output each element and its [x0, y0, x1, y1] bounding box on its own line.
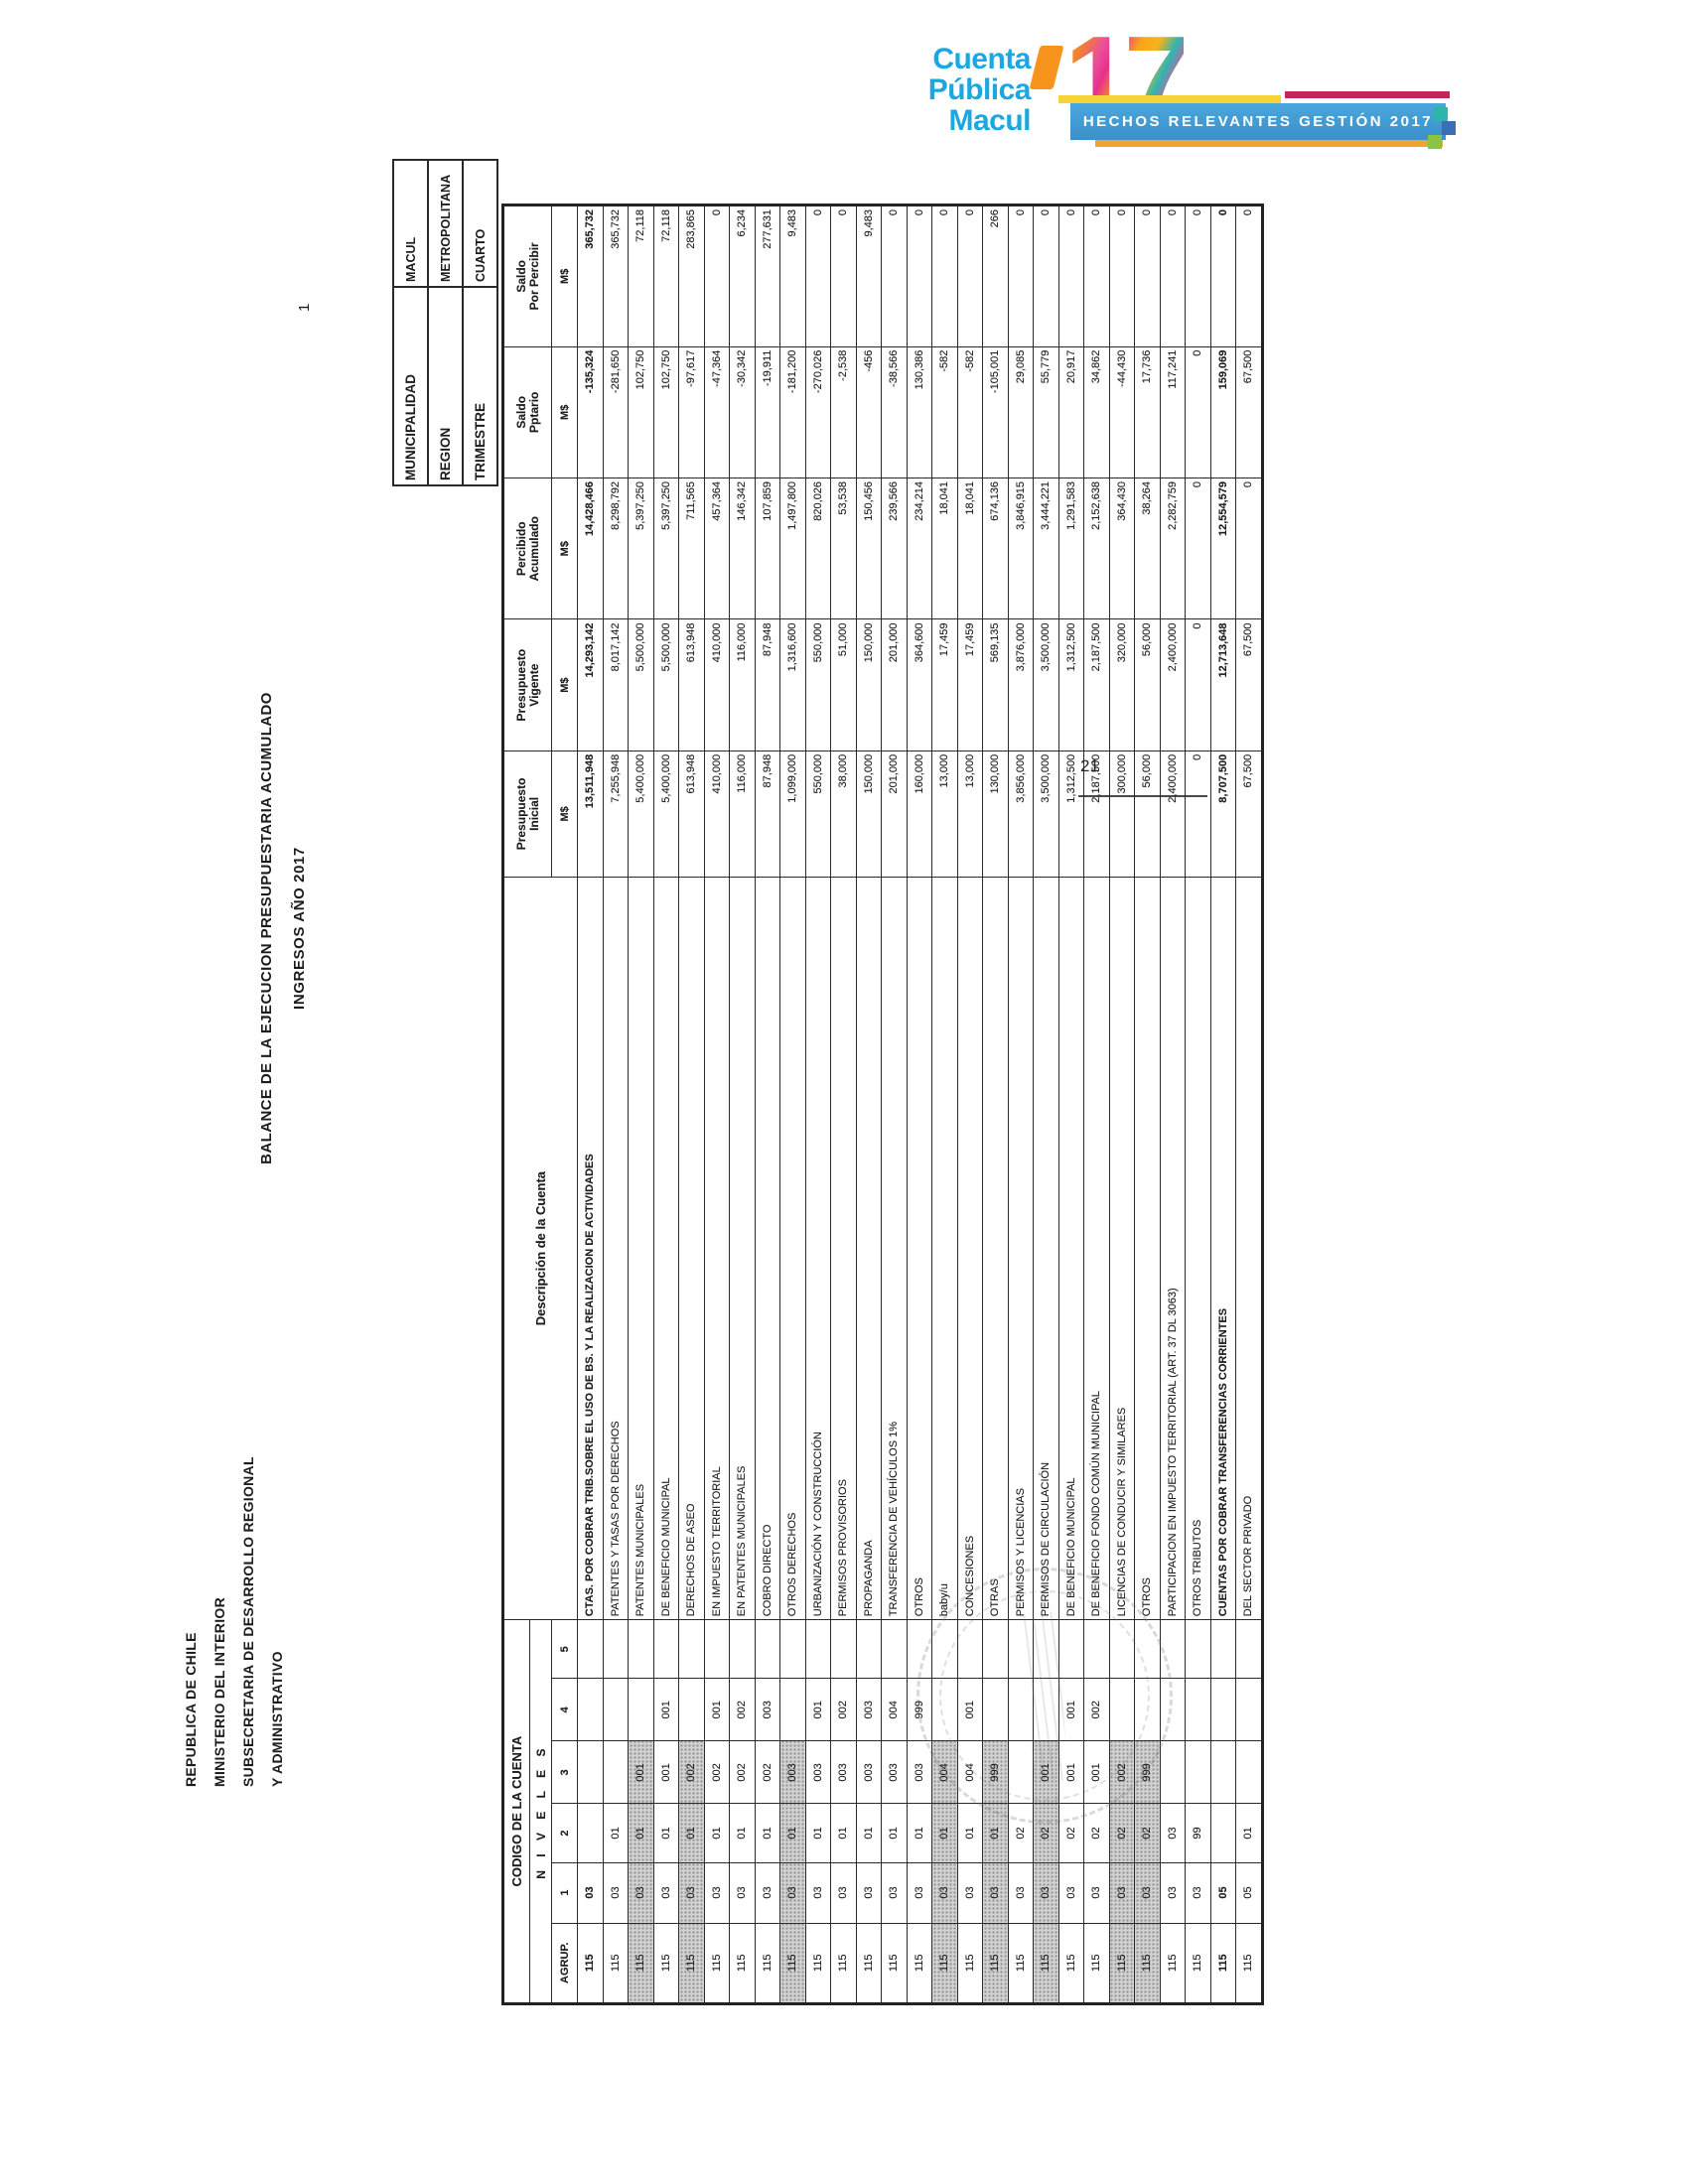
cell-code: 115 [1210, 1923, 1236, 2003]
header-level-1: 1 [552, 1862, 578, 1923]
cell-amount: 13,000 [932, 751, 958, 877]
cell-code: 003 [780, 1741, 806, 1804]
cell-code [1236, 1741, 1263, 1804]
cell-code: 003 [856, 1679, 882, 1741]
cell-code [1186, 1741, 1211, 1804]
cell-amount: 550,000 [805, 751, 831, 877]
cell-code: 002 [730, 1741, 756, 1804]
table-row: 1150301002001EN IMPUESTO TERRITORIAL410,… [704, 205, 730, 2004]
cell-description: TRANSFERENCIA DE VEHÍCULOS 1% [882, 878, 908, 1620]
cell-amount: 201,000 [882, 619, 908, 751]
cell-code: 02 [1109, 1804, 1135, 1862]
cell-amount: 5,400,000 [629, 751, 654, 877]
cell-amount: 160,000 [907, 751, 932, 877]
cell-amount: 5,397,250 [629, 478, 654, 619]
cell-code [629, 1620, 654, 1679]
cell-amount: 34,862 [1084, 346, 1110, 478]
cell-amount: 0 [704, 205, 730, 347]
cell-code: 01 [653, 1804, 679, 1862]
cell-code: 01 [856, 1804, 882, 1862]
cell-amount: 1,497,800 [780, 478, 806, 619]
cell-amount: 0 [1186, 751, 1211, 877]
cell-code: 03 [603, 1862, 629, 1923]
cell-code: 01 [629, 1804, 654, 1862]
cell-code: 002 [704, 1741, 730, 1804]
cell-amount: 6,234 [730, 205, 756, 347]
cell-amount: 0 [1058, 205, 1084, 347]
cell-code: 003 [856, 1741, 882, 1804]
cell-code: 001 [629, 1741, 654, 1804]
cell-code: 004 [882, 1679, 908, 1741]
cell-code [629, 1679, 654, 1741]
cell-description: COBRO DIRECTO [755, 878, 780, 1620]
cell-amount: 38,000 [831, 751, 857, 877]
cell-amount: 201,000 [882, 751, 908, 877]
cell-code: 03 [1160, 1862, 1186, 1923]
cell-amount: 102,750 [629, 346, 654, 478]
cell-code: 03 [730, 1862, 756, 1923]
cell-code: 002 [679, 1741, 705, 1804]
cell-amount: 7,255,948 [603, 751, 629, 877]
cell-amount: 1,099,000 [780, 751, 806, 877]
cell-amount: -181,200 [780, 346, 806, 478]
cell-amount: 0 [1135, 205, 1161, 347]
cell-code [679, 1679, 705, 1741]
cell-code [831, 1620, 857, 1679]
header-unit-m: M$ [552, 205, 578, 347]
scanned-document-page: Cuenta Pública Macul 17 HECHOS RELEVANTE… [0, 0, 1688, 2184]
cell-amount: 1,291,583 [1058, 478, 1084, 619]
cell-amount: 0 [907, 205, 932, 347]
info-value: METROPOLITANA [428, 160, 463, 287]
cell-code: 115 [957, 1923, 983, 2003]
cell-amount: 150,456 [856, 478, 882, 619]
cell-amount: 9,483 [780, 205, 806, 347]
cell-amount: 146,342 [730, 478, 756, 619]
cell-code: 115 [755, 1923, 780, 2003]
cell-code: 001 [653, 1741, 679, 1804]
cell-description: LICENCIAS DE CONDUCIR Y SIMILARES [1109, 878, 1135, 1620]
cell-amount: 5,500,000 [629, 619, 654, 751]
cell-amount: 56,000 [1135, 619, 1161, 751]
cell-amount: 1,312,500 [1058, 619, 1084, 751]
header-level-5: 5 [552, 1620, 578, 1679]
cell-code: 001 [805, 1679, 831, 1741]
header-unit-m: M$ [552, 751, 578, 877]
cell-amount: -2,538 [831, 346, 857, 478]
cell-code: 03 [805, 1862, 831, 1923]
letterhead-line: Y ADMINISTRATIVO [263, 1456, 292, 1787]
document-title: BALANCE DE LA EJECUCION PRESUPUESTARIA A… [258, 546, 308, 1310]
cell-code: 115 [932, 1923, 958, 2003]
cell-code: 01 [907, 1804, 932, 1862]
cell-code [1236, 1620, 1263, 1679]
cell-description: DE BENEFICIO MUNICIPAL [653, 878, 679, 1620]
cell-code [882, 1620, 908, 1679]
cell-description: baby/u [932, 878, 958, 1620]
cell-code [780, 1620, 806, 1679]
table-row: 1150501DEL SECTOR PRIVADO67,50067,500067… [1236, 205, 1263, 2004]
cell-code [805, 1620, 831, 1679]
cell-amount: 53,538 [831, 478, 857, 619]
cell-description: DERECHOS DE ASEO [679, 878, 705, 1620]
cell-code: 01 [730, 1804, 756, 1862]
cell-code: 03 [1058, 1862, 1084, 1923]
cell-description: PERMISOS Y LICENCIAS [1008, 878, 1034, 1620]
apostrophe-icon [1030, 46, 1064, 89]
banner-yellow-line [1058, 95, 1281, 103]
cell-code: 115 [578, 1923, 604, 2003]
cell-amount: 0 [1186, 478, 1211, 619]
cell-amount: 0 [1160, 205, 1186, 347]
cell-amount: -97,617 [679, 346, 705, 478]
cell-amount: 410,000 [704, 619, 730, 751]
header-niveles: N I V E L E S [530, 1620, 552, 2004]
info-label: MUNICIPALIDAD [393, 287, 428, 485]
cuenta-publica-logo: Cuenta Pública Macul [765, 44, 1031, 136]
info-label: TRIMESTRE [463, 287, 497, 485]
cell-amount: 613,948 [679, 619, 705, 751]
cell-amount: -582 [932, 346, 958, 478]
cell-amount: 613,948 [679, 751, 705, 877]
cell-description: CUENTAS POR COBRAR TRANSFERENCIAS CORRIE… [1210, 878, 1236, 1620]
banner: HECHOS RELEVANTES GESTIÓN 2017 [1070, 103, 1446, 140]
cell-amount: 130,386 [907, 346, 932, 478]
title-line-2: INGRESOS AÑO 2017 [291, 546, 308, 1310]
cell-amount: 0 [1210, 205, 1236, 347]
cell-amount: 87,948 [755, 619, 780, 751]
cell-code: 99 [1186, 1804, 1211, 1862]
cell-description: EN PATENTES MUNICIPALES [730, 878, 756, 1620]
cell-amount: 550,000 [805, 619, 831, 751]
cell-amount: 283,865 [679, 205, 705, 347]
cell-amount: 0 [932, 205, 958, 347]
cell-code [603, 1741, 629, 1804]
cell-description: CTAS. POR COBRAR TRIB.SOBRE EL USO DE BS… [578, 878, 604, 1620]
cell-code: 01 [805, 1804, 831, 1862]
cell-amount: 2,400,000 [1160, 619, 1186, 751]
cell-code: 03 [755, 1862, 780, 1923]
cell-amount: 17,736 [1135, 346, 1161, 478]
cell-amount: 300,000 [1109, 751, 1135, 877]
cell-amount: 159,069 [1210, 346, 1236, 478]
letterhead-line: REPUBLICA DE CHILE [177, 1456, 206, 1787]
cell-code: 01 [882, 1804, 908, 1862]
cell-description: PATENTES MUNICIPALES [629, 878, 654, 1620]
cell-code: 03 [1135, 1862, 1161, 1923]
banner-text: HECHOS RELEVANTES GESTIÓN 2017 [1083, 113, 1433, 130]
banner-pixel-teal [1434, 107, 1448, 121]
cell-code: 03 [1008, 1862, 1034, 1923]
cell-amount: 674,136 [983, 478, 1009, 619]
info-value: MACUL [393, 160, 428, 287]
cell-amount: 0 [805, 205, 831, 347]
cell-code: 03 [704, 1862, 730, 1923]
cell-code: 03 [856, 1862, 882, 1923]
cell-amount: -456 [856, 346, 882, 478]
cell-code: 001 [704, 1679, 730, 1741]
cell-amount: 0 [1236, 205, 1263, 347]
logo-word-macul: Macul [765, 105, 1031, 136]
cell-code: 03 [1160, 1804, 1186, 1862]
table-row: 1150301002003COBRO DIRECTO87,94887,94810… [755, 205, 780, 2004]
cell-code: 03 [629, 1862, 654, 1923]
cell-code: 01 [780, 1804, 806, 1862]
cell-description: CONCESIONES [957, 878, 983, 1620]
cell-code: 03 [578, 1862, 604, 1923]
cell-description: DEL SECTOR PRIVADO [1236, 878, 1263, 1620]
cell-code: 115 [730, 1923, 756, 2003]
cell-description: OTRAS [983, 878, 1009, 1620]
cell-amount: 67,500 [1236, 346, 1263, 478]
cell-description: PATENTES Y TASAS POR DERECHOS [603, 878, 629, 1620]
cell-code: 003 [831, 1741, 857, 1804]
letterhead-line: MINISTERIO DEL INTERIOR [206, 1456, 234, 1787]
cell-code: 115 [1236, 1923, 1263, 2003]
cell-amount: 107,859 [755, 478, 780, 619]
header-unit-m: M$ [552, 619, 578, 751]
cell-amount: -19,911 [755, 346, 780, 478]
info-row: TRIMESTRE CUARTO [463, 160, 497, 485]
cell-code: 03 [1084, 1862, 1110, 1923]
cell-code: 115 [1008, 1923, 1034, 2003]
cell-amount: 365,732 [578, 205, 604, 347]
cell-amount: 0 [1186, 619, 1211, 751]
cell-code: 03 [780, 1862, 806, 1923]
cell-code: 01 [932, 1804, 958, 1862]
cell-amount: 8,707,500 [1210, 751, 1236, 877]
header-saldo-pptario: Saldo Pptario [503, 346, 552, 478]
cell-amount: 102,750 [653, 346, 679, 478]
cell-amount: 116,000 [730, 619, 756, 751]
cell-amount: 0 [1109, 205, 1135, 347]
cell-code: 115 [983, 1923, 1009, 2003]
cell-amount: -30,342 [730, 346, 756, 478]
cell-amount: -281,650 [603, 346, 629, 478]
cell-amount: -105,001 [983, 346, 1009, 478]
header-presupuesto-inicial: Presupuesto Inicial [503, 751, 552, 877]
cell-amount: 130,000 [983, 751, 1009, 877]
cell-amount: 18,041 [932, 478, 958, 619]
rotated-sheet: REPUBLICA DE CHILE MINISTERIO DEL INTERI… [169, 149, 1321, 2005]
cell-amount: 365,732 [603, 205, 629, 347]
header-level-4: 4 [552, 1679, 578, 1741]
banner-crimson-line [1285, 91, 1450, 98]
header-presupuesto-vigente: Presupuesto Vigente [503, 619, 552, 751]
cell-code [1210, 1620, 1236, 1679]
cell-amount: 17,459 [957, 619, 983, 751]
title-line-1: BALANCE DE LA EJECUCION PRESUPUESTARIA A… [258, 546, 275, 1310]
info-row: MUNICIPALIDAD MACUL [393, 160, 428, 485]
cell-amount: 3,500,000 [1034, 619, 1059, 751]
banner-pixel-blue [1442, 121, 1456, 135]
cell-code: 115 [805, 1923, 831, 2003]
table-row: 1150301001001DE BENEFICIO MUNICIPAL5,400… [653, 205, 679, 2004]
cell-code [603, 1620, 629, 1679]
cell-description: OTROS [907, 878, 932, 1620]
cell-amount: 2,400,000 [1160, 751, 1186, 877]
cell-amount: 3,876,000 [1008, 619, 1034, 751]
cell-amount: 0 [1008, 205, 1034, 347]
table-row: 11505CUENTAS POR COBRAR TRANSFERENCIAS C… [1210, 205, 1236, 2004]
cell-code: 001 [653, 1679, 679, 1741]
letterhead-line: SUBSECRETARIA DE DESARROLLO REGIONAL [234, 1456, 263, 1787]
cell-code [780, 1679, 806, 1741]
table-row: 1150301003003PROPAGANDA150,000150,000150… [856, 205, 882, 2004]
municipality-info-box: MUNICIPALIDAD MACUL REGION METROPOLITANA… [392, 159, 498, 486]
cell-code [1160, 1741, 1186, 1804]
logo-word-cuenta: Cuenta [765, 44, 1031, 74]
cell-code: 03 [679, 1862, 705, 1923]
cell-amount: 9,483 [856, 205, 882, 347]
cell-code: 01 [831, 1804, 857, 1862]
header-agrup: AGRUP. [552, 1923, 578, 2003]
cell-code: 115 [1135, 1923, 1161, 2003]
cell-code: 03 [831, 1862, 857, 1923]
ink-stamp-icon [916, 1568, 1173, 1824]
cell-amount: 29,085 [1008, 346, 1034, 478]
cell-amount: 56,000 [1135, 751, 1161, 877]
cell-code: 03 [957, 1862, 983, 1923]
cell-amount: 3,500,000 [1034, 751, 1059, 877]
cell-code [730, 1620, 756, 1679]
cell-amount: 150,000 [856, 751, 882, 877]
cell-amount: -44,430 [1109, 346, 1135, 478]
cell-description: PERMISOS DE CIRCULACIÓN [1034, 878, 1059, 1620]
logo-word-publica: Pública [765, 74, 1031, 105]
cell-code [578, 1679, 604, 1741]
cell-amount: 0 [882, 205, 908, 347]
cell-code: 03 [932, 1862, 958, 1923]
cell-amount: 0 [831, 205, 857, 347]
cell-amount: 457,364 [704, 478, 730, 619]
cell-amount: -270,026 [805, 346, 831, 478]
cell-code: 03 [907, 1862, 932, 1923]
cell-amount: 5,400,000 [653, 751, 679, 877]
cell-code: 115 [1160, 1923, 1186, 2003]
header-unit-m: M$ [552, 346, 578, 478]
cell-amount: 239,566 [882, 478, 908, 619]
cell-description: URBANIZACIÓN Y CONSTRUCCIÓN [805, 878, 831, 1620]
cell-code [1210, 1741, 1236, 1804]
cell-amount: 0 [1084, 205, 1110, 347]
cell-code: 03 [1109, 1862, 1135, 1923]
cell-description: OTROS [1135, 878, 1161, 1620]
header-percibido-acumulado: Percibido Acumulado [503, 478, 552, 619]
cell-code: 115 [1058, 1923, 1084, 2003]
cell-amount: 2,152,638 [1084, 478, 1110, 619]
cell-amount: 55,779 [1034, 346, 1059, 478]
cell-code: 115 [1084, 1923, 1110, 2003]
cell-code: 03 [1186, 1862, 1211, 1923]
cell-code: 05 [1236, 1862, 1263, 1923]
cell-amount: 2,282,759 [1160, 478, 1186, 619]
cell-code [1236, 1679, 1263, 1741]
cell-code [578, 1804, 604, 1862]
cell-code [1210, 1804, 1236, 1862]
table-row: 1150301003002PERMISOS PROVISORIOS38,0005… [831, 205, 857, 2004]
info-value: CUARTO [463, 160, 497, 287]
cell-amount: 0 [1034, 205, 1059, 347]
cell-amount: 20,917 [1058, 346, 1084, 478]
header-unit-m: M$ [552, 478, 578, 619]
cell-amount: 87,948 [755, 751, 780, 877]
cell-code: 002 [831, 1679, 857, 1741]
cell-amount: 364,430 [1109, 478, 1135, 619]
header-saldo-por-percibir: Saldo Por Percibir [503, 205, 552, 347]
cell-amount: 12,713,648 [1210, 619, 1236, 751]
cell-code: 003 [805, 1741, 831, 1804]
cell-description: OTROS DERECHOS [780, 878, 806, 1620]
cell-amount: 18,041 [957, 478, 983, 619]
cell-amount: 820,026 [805, 478, 831, 619]
cell-amount: 14,428,466 [578, 478, 604, 619]
cell-code: 03 [882, 1862, 908, 1923]
cell-amount: 150,000 [856, 619, 882, 751]
cell-amount: 12,554,579 [1210, 478, 1236, 619]
table-row: 1150301003004TRANSFERENCIA DE VEHÍCULOS … [882, 205, 908, 2004]
cell-code: 003 [882, 1741, 908, 1804]
cell-amount: 72,118 [629, 205, 654, 347]
cell-amount: 410,000 [704, 751, 730, 877]
cell-amount: 2,187,500 [1084, 619, 1110, 751]
cell-amount: 569,135 [983, 619, 1009, 751]
cell-amount: 1,316,600 [780, 619, 806, 751]
cell-code: 115 [653, 1923, 679, 2003]
cell-amount: 0 [957, 205, 983, 347]
cell-amount: -38,566 [882, 346, 908, 478]
cell-code: 002 [755, 1741, 780, 1804]
cell-description: PROPAGANDA [856, 878, 882, 1620]
cell-code: 03 [653, 1862, 679, 1923]
header-level-2: 2 [552, 1804, 578, 1862]
cell-code [653, 1620, 679, 1679]
table-row: 1150301003001URBANIZACIÓN Y CONSTRUCCIÓN… [805, 205, 831, 2004]
cell-code: 115 [1034, 1923, 1059, 2003]
cell-code [1186, 1679, 1211, 1741]
cell-amount: -582 [957, 346, 983, 478]
cell-code: 115 [1186, 1923, 1211, 2003]
cell-amount: 2,187,500 [1084, 751, 1110, 877]
cell-code [704, 1620, 730, 1679]
cell-code [856, 1620, 882, 1679]
cell-code: 002 [730, 1679, 756, 1741]
cell-code: 02 [1135, 1804, 1161, 1862]
cell-description: DE BENEFICIO MUNICIPAL [1058, 878, 1084, 1620]
cell-code: 115 [603, 1923, 629, 2003]
cell-amount: 67,500 [1236, 619, 1263, 751]
cell-code: 115 [907, 1923, 932, 2003]
cell-amount: 234,214 [907, 478, 932, 619]
letterhead: REPUBLICA DE CHILE MINISTERIO DEL INTERI… [177, 1456, 292, 1787]
cell-amount: 0 [1186, 205, 1211, 347]
cell-code [578, 1741, 604, 1804]
cell-code: 115 [629, 1923, 654, 2003]
cell-amount: 14,293,142 [578, 619, 604, 751]
cell-code [578, 1620, 604, 1679]
cell-code: 115 [780, 1923, 806, 2003]
cell-code [603, 1679, 629, 1741]
cell-amount: 1,312,500 [1058, 751, 1084, 877]
cell-code: 03 [983, 1862, 1009, 1923]
cell-code: 115 [704, 1923, 730, 2003]
cell-code: 115 [856, 1923, 882, 2003]
cell-code [755, 1620, 780, 1679]
table-row: 1150301001PATENTES MUNICIPALES5,400,0005… [629, 205, 654, 2004]
table-row: 1150301002002EN PATENTES MUNICIPALES116,… [730, 205, 756, 2004]
cell-code: 01 [1236, 1804, 1263, 1862]
cell-code: 01 [704, 1804, 730, 1862]
